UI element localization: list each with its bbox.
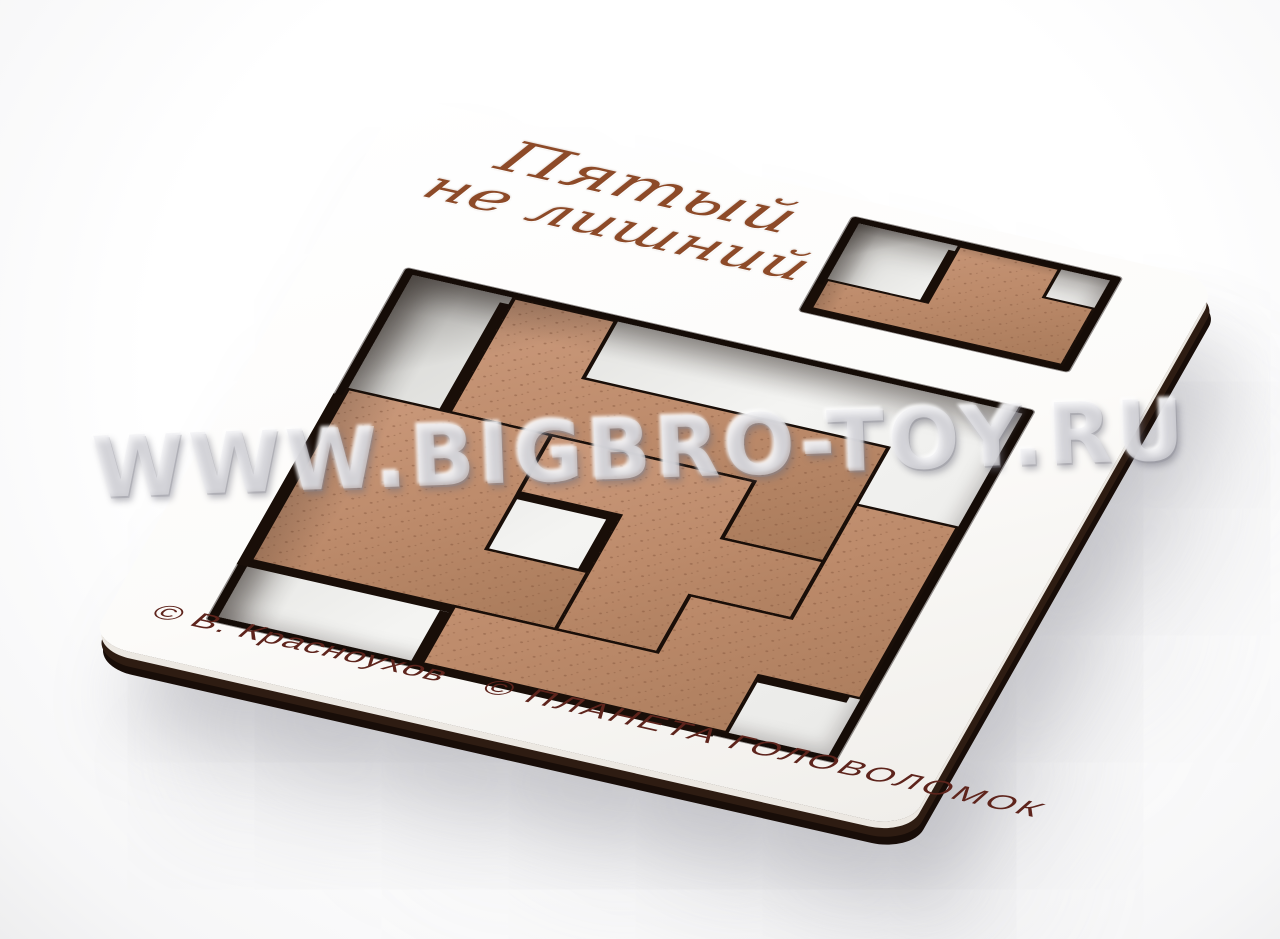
puzzle-board: Пятый не лишний — [89, 95, 1218, 829]
photo-background: Пятый не лишний — [0, 0, 1280, 939]
